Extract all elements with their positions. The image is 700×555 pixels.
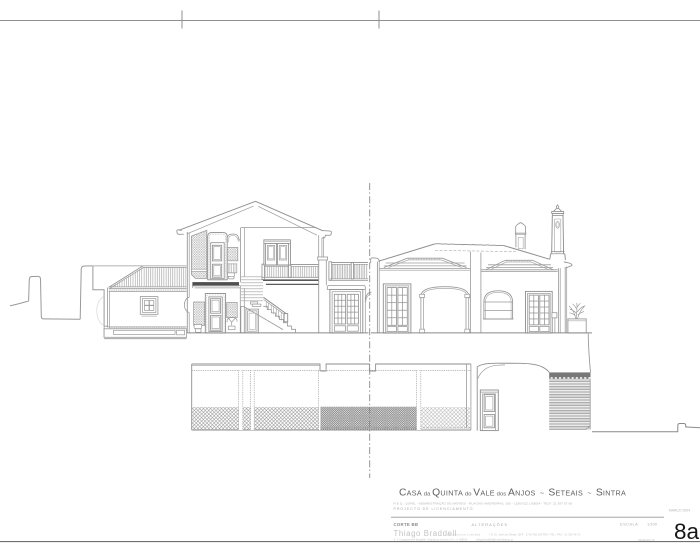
svg-text:R E Q : QUFEL - ADMINISTRAÇÃO: R E Q : QUFEL - ADMINISTRAÇÃO DE IMÓVEIS…	[394, 501, 573, 506]
svg-text:CASA da QUINTA do VALE dos ANJ: CASA da QUINTA do VALE dos ANJOS ~ SETEA…	[399, 488, 626, 499]
svg-text:4. T. Casadamorel Braddell, A: 4. T. Casadamorel Braddell, Arquitecto I…	[394, 537, 468, 541]
svg-text:thiagobraddell@mail.telepac.pt: thiagobraddell@mail.telepac.pt	[476, 537, 513, 541]
svg-text:CORTE BB: CORTE BB	[394, 522, 419, 527]
svg-text:• R. St. José de Olivais, 38-: • R. St. José de Olivais, 38-F - 2715-45…	[489, 532, 581, 536]
svg-text:PROJECTO DE LICENCIAMENTO: PROJECTO DE LICENCIAMENTO	[394, 507, 474, 511]
svg-text:arquitectura Limitada: arquitectura Limitada	[447, 533, 480, 537]
svg-text:8a: 8a	[674, 519, 700, 544]
svg-text:1/100: 1/100	[647, 522, 658, 527]
svg-text:ESCALA:: ESCALA:	[620, 522, 640, 527]
svg-text:MARÇO 2004: MARÇO 2004	[669, 509, 690, 513]
svg-text:ALTERAÇÕES: ALTERAÇÕES	[472, 522, 509, 527]
